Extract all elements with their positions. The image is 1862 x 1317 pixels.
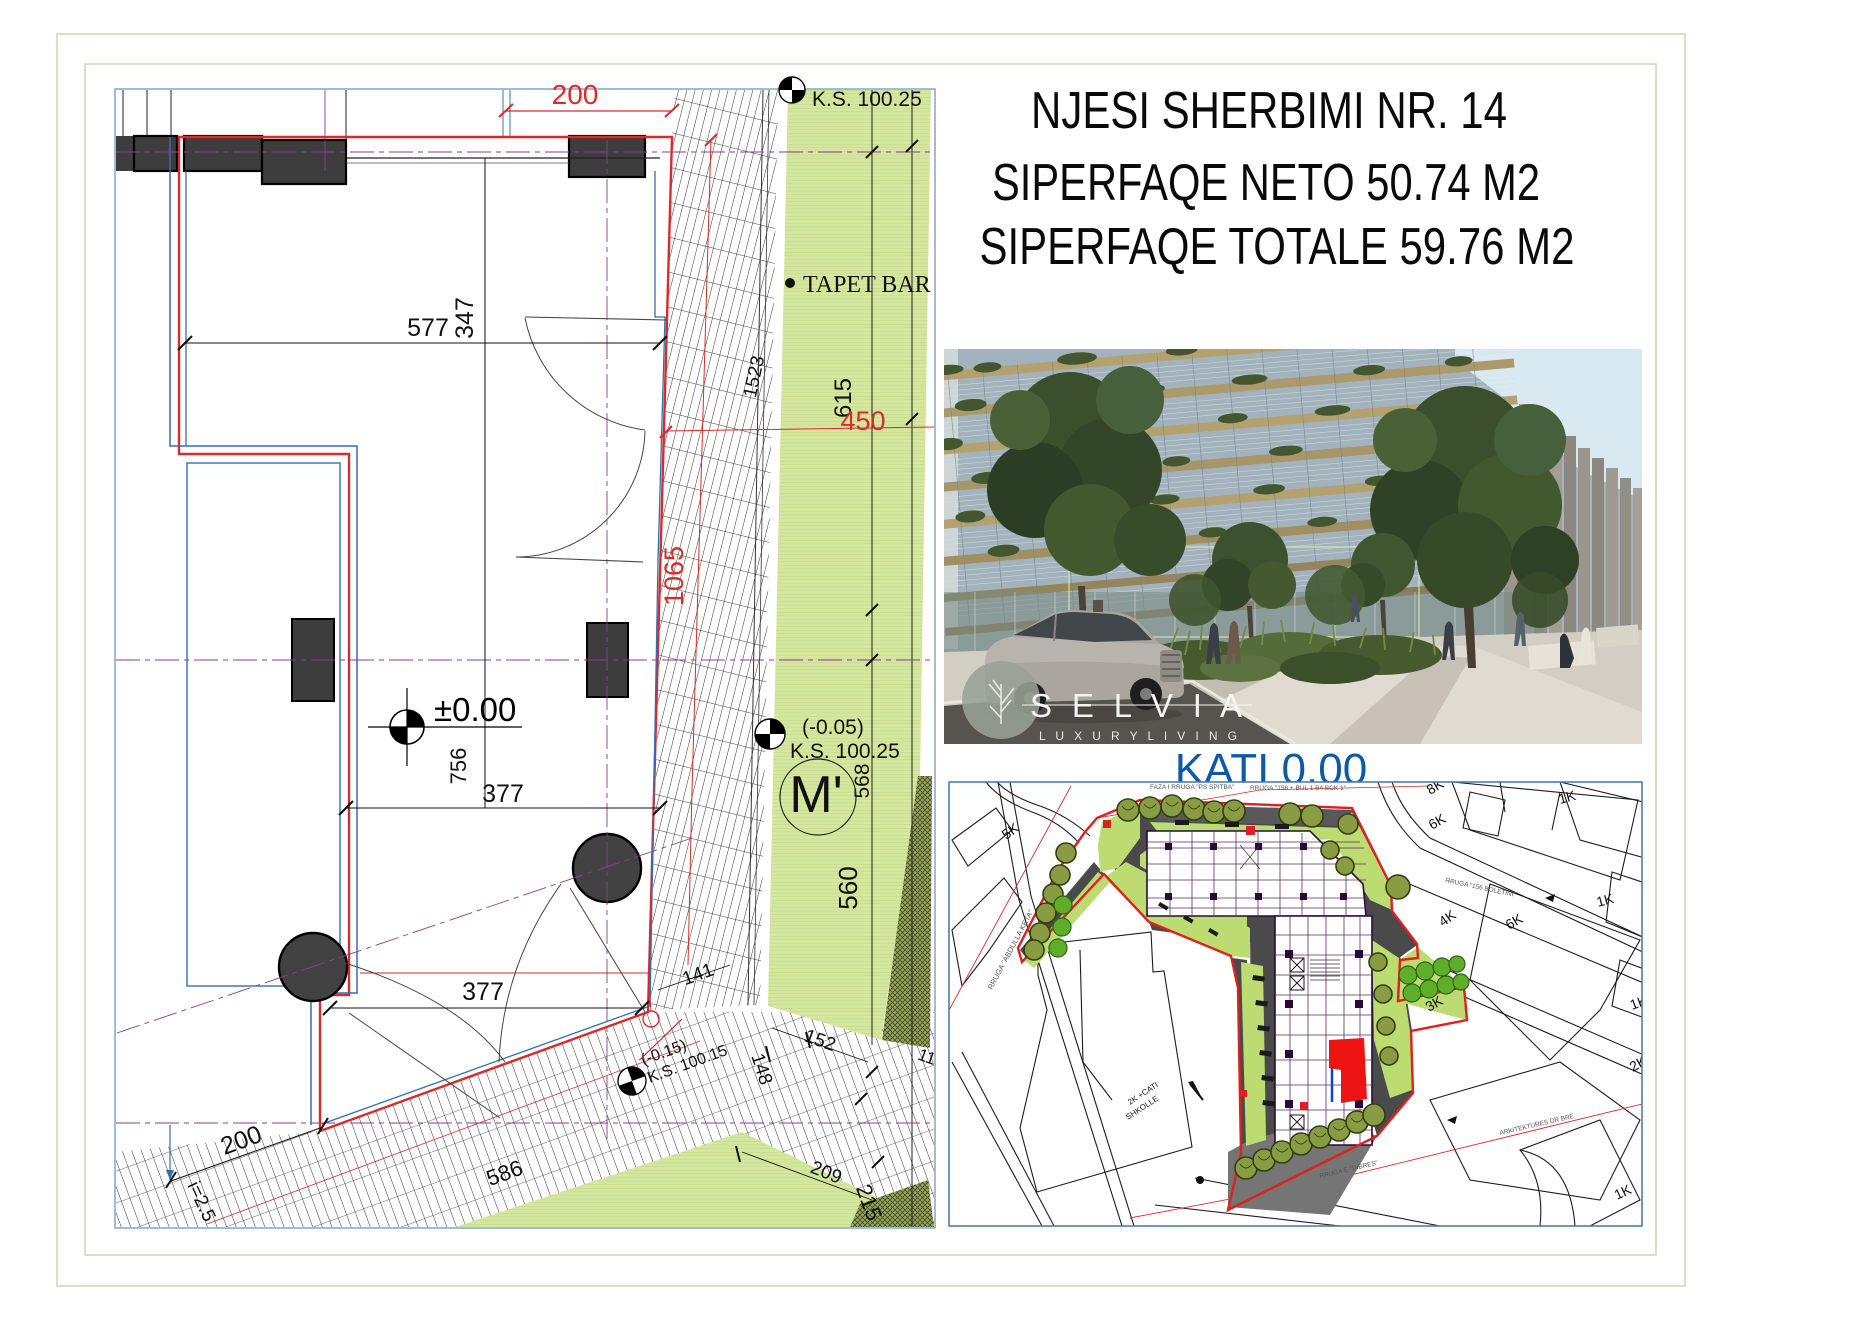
svg-text:RRUGA "156 + BUL 1 B4 BCK 1": RRUGA "156 + BUL 1 B4 BCK 1" <box>1250 785 1347 792</box>
svg-text:200: 200 <box>552 79 599 110</box>
svg-text:K.S. 100.25: K.S. 100.25 <box>812 88 922 111</box>
svg-text:577: 577 <box>407 314 449 342</box>
svg-text:±0.00: ±0.00 <box>434 691 516 728</box>
svg-text:347: 347 <box>451 297 479 339</box>
svg-text:NJESI SHERBIMI NR. 14: NJESI SHERBIMI NR. 14 <box>1031 82 1507 140</box>
svg-text:K.S. 100.25: K.S. 100.25 <box>790 740 900 763</box>
svg-text:FAZA I RRUGA "PS SPITBA": FAZA I RRUGA "PS SPITBA" <box>1150 784 1235 791</box>
svg-text:(-0.05): (-0.05) <box>802 716 864 739</box>
svg-text:450: 450 <box>840 406 885 436</box>
svg-text:377: 377 <box>462 978 504 1006</box>
svg-text:377: 377 <box>482 780 524 808</box>
svg-text:560: 560 <box>833 866 863 909</box>
svg-text:M': M' <box>789 766 842 824</box>
svg-text:TAPET BAR: TAPET BAR <box>803 272 931 298</box>
svg-text:756: 756 <box>446 748 471 785</box>
svg-text:1065: 1065 <box>659 546 689 606</box>
svg-text:SIPERFAQE NETO 50.74 M2: SIPERFAQE NETO 50.74 M2 <box>992 154 1540 212</box>
svg-text:SIPERFAQE TOTALE 59.76 M2: SIPERFAQE TOTALE 59.76 M2 <box>980 218 1575 276</box>
svg-text:568: 568 <box>851 763 874 798</box>
